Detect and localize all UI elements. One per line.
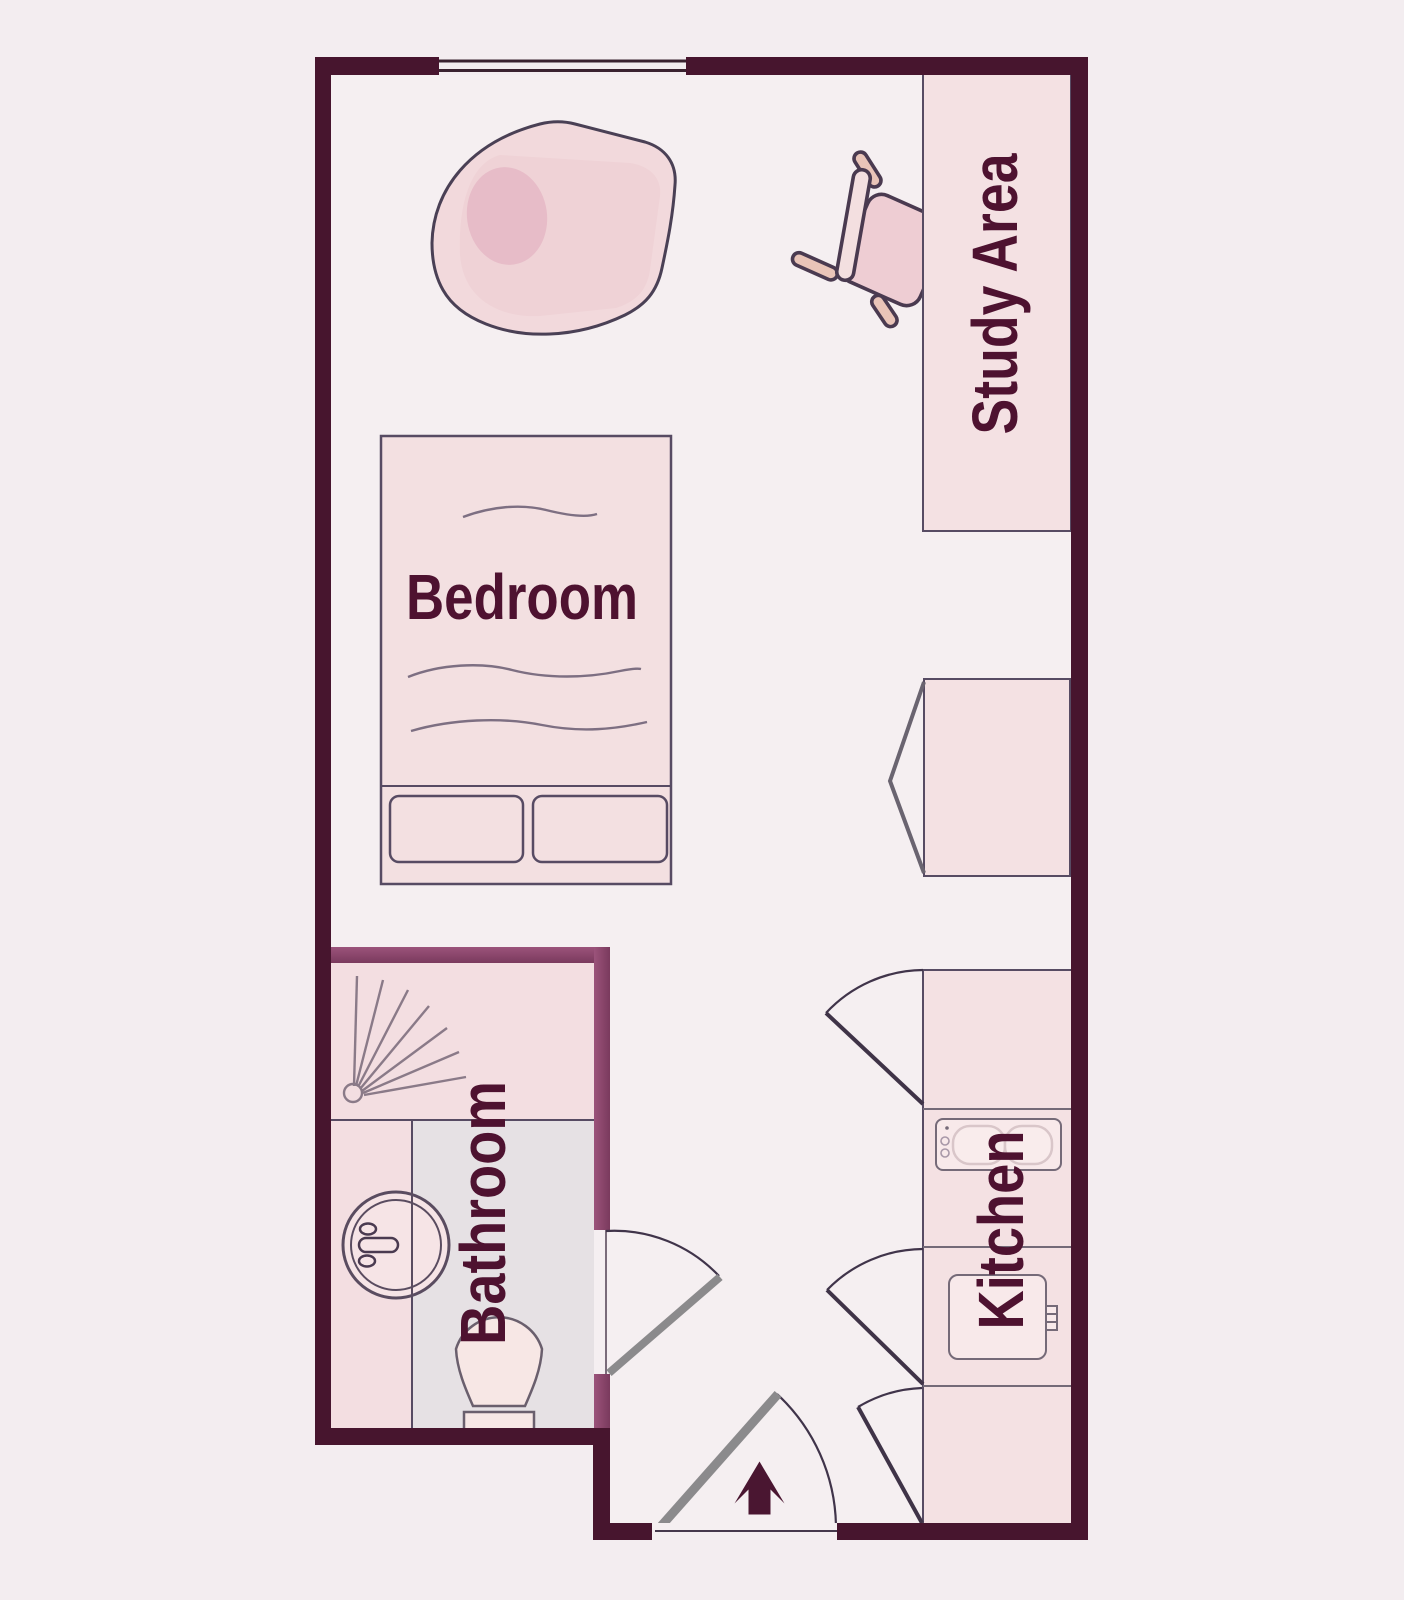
- svg-text:Study Area: Study Area: [959, 153, 1031, 434]
- svg-text:Bathroom: Bathroom: [447, 1081, 519, 1345]
- svg-text:Bedroom: Bedroom: [406, 561, 638, 633]
- svg-text:Kitchen: Kitchen: [965, 1131, 1037, 1330]
